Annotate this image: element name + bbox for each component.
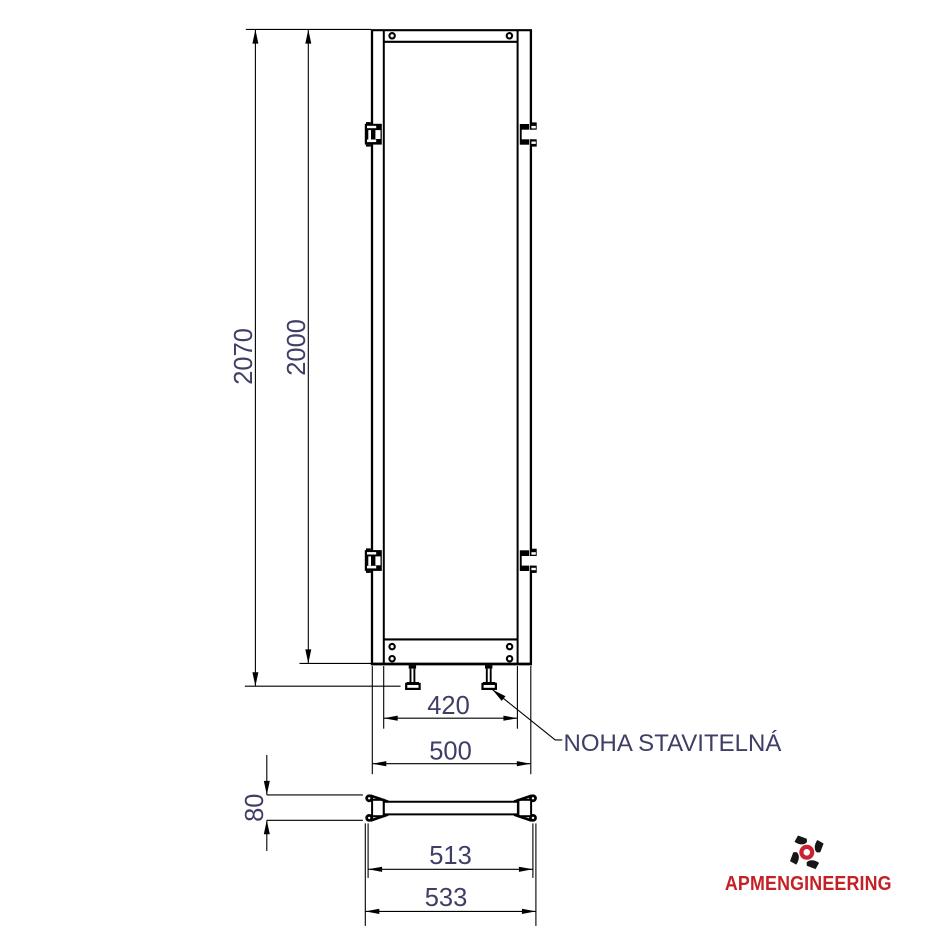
svg-text:500: 500 [429,737,472,765]
svg-text:NOHA STAVITELNÁ: NOHA STAVITELNÁ [564,730,782,757]
svg-text:2070: 2070 [230,328,258,385]
svg-text:80: 80 [241,794,269,822]
svg-text:420: 420 [427,692,470,720]
svg-text:APMENGINEERING: APMENGINEERING [725,873,892,895]
svg-text:2000: 2000 [283,319,311,376]
svg-text:533: 533 [425,884,468,912]
svg-text:513: 513 [429,842,472,870]
